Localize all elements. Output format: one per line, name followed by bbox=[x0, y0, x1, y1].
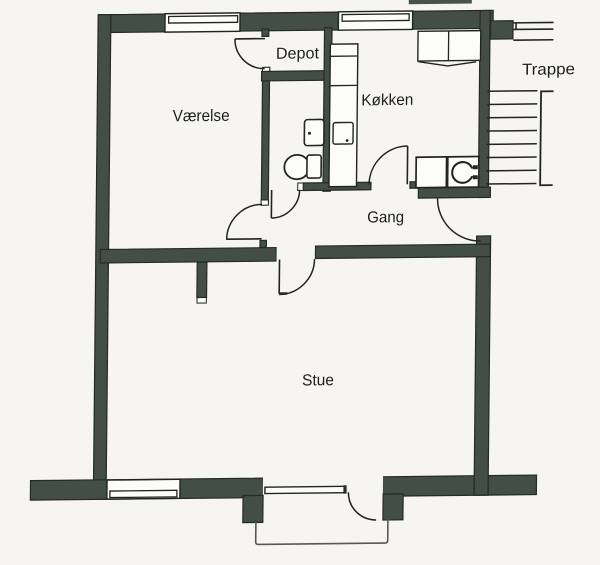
svg-text:Stue: Stue bbox=[302, 372, 334, 389]
svg-text:Værelse: Værelse bbox=[173, 107, 230, 126]
svg-text:Køkken: Køkken bbox=[361, 92, 413, 110]
svg-text:Gang: Gang bbox=[367, 209, 404, 226]
svg-text:Trappe: Trappe bbox=[522, 61, 575, 79]
svg-text:Depot: Depot bbox=[276, 45, 320, 62]
